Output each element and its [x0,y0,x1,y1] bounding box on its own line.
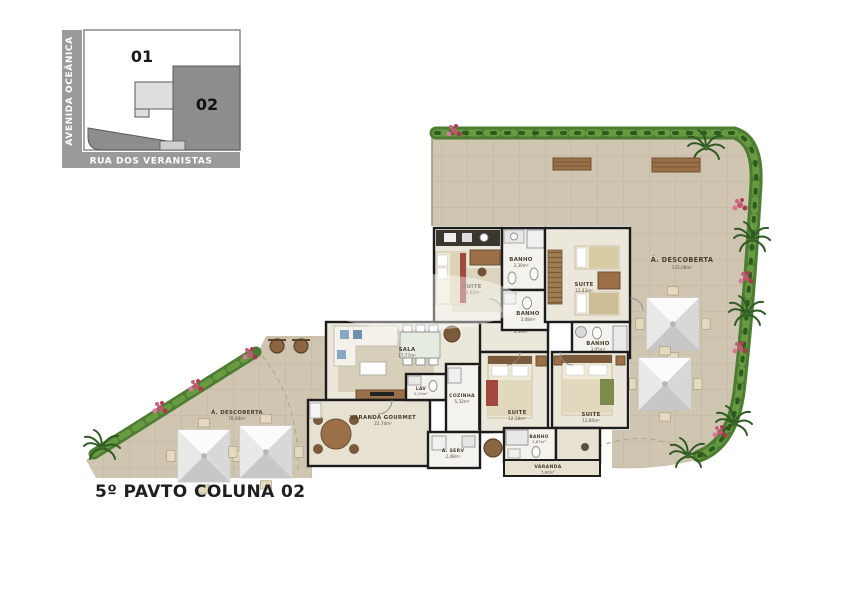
floorplan-page: 01 02 AVENIDA OCEÂNICA RUA DOS VERANISTA… [0,0,849,600]
laundry-tank [462,436,475,447]
apartment-unit-02: SALA 17,77m² VARANDA GOURMET 22,74m² CIR… [308,228,643,476]
street-left-label: AVENIDA OCEÂNICA [63,36,75,145]
bed [575,246,619,269]
room-lav: LAV 2,15m² [406,374,446,400]
room-suite-bottom-left: SUITE 12,18m² [480,352,548,432]
nightstand [598,272,620,289]
tv-sideboard [356,390,412,399]
bench [553,158,591,170]
toilet [508,272,516,284]
room-area: 5,86m² [541,470,555,475]
room-area: 3,08m² [520,317,535,322]
room-area: 2,67m² [532,439,546,444]
sink [511,233,518,240]
elevator-core [135,82,173,109]
desk [470,250,500,265]
room-banho-4: BANHO 2,67m² [504,428,556,462]
bed [562,355,614,415]
gazebo-table [636,287,710,361]
watermark [320,274,520,330]
dining-table [400,325,440,365]
washer [432,436,446,450]
wardrobe [548,250,562,304]
room-area: 5,32m² [454,399,469,404]
shower [506,430,528,445]
floor-drain [581,443,589,451]
counter-appliance [462,233,472,242]
room-area: 2,48m² [445,454,460,459]
open-area-label: Á. DESCOBERTA [211,409,263,416]
toilet [532,447,540,458]
room-area: 2,15m² [414,391,428,396]
bed [575,292,619,315]
room-suite-top-right: SUITE 12,43m² [545,228,630,322]
floorplan-canvas: 01 02 AVENIDA OCEÂNICA RUA DOS VERANISTA… [0,0,849,600]
room-area: 12,80m² [582,418,600,423]
unit-01-label: 01 [131,47,153,66]
room-label: Á. SERV [442,447,465,454]
room-varanda-gourmet: VARANDA GOURMET 22,74m² [308,400,430,466]
shower [613,326,627,354]
coffee-table [360,362,386,375]
gazebo-table [628,347,702,421]
vanity-counter [508,449,520,458]
basin [576,327,587,338]
counter-appliance [444,233,456,242]
nightstand [536,356,546,366]
plan-title: 5º PAVTO COLUNA 02 [95,482,305,502]
elevator-core-step [135,109,149,117]
toilet [429,381,437,392]
bidet [530,268,538,280]
room-banho-1: BANHO 3,30m² [502,228,546,290]
counter-sink [480,234,488,242]
open-area-label: Á. DESCOBERTA [651,255,714,264]
open-area-size: 78,08m² [228,416,246,421]
room-a-serv: Á. SERV 2,48m² [428,432,480,468]
room-suite-bottom-right: SUITE 12,80m² [552,352,628,428]
fridge [448,368,461,383]
desk-chair [478,268,487,277]
gazebo-table [229,415,303,489]
chair [349,444,359,454]
nightstand [616,356,625,365]
open-area-size: 135,08m² [672,265,693,270]
chair [313,444,323,454]
left-terrace: Á. DESCOBERTA 78,08m² [84,336,341,493]
unit-02-notch [160,141,185,150]
toilet [593,327,602,339]
room-area: 17,77m² [398,353,416,358]
shower [527,230,544,248]
planter-box [310,403,321,418]
unit-02-label: 02 [196,95,218,114]
round-table [321,419,351,449]
location-key-map: 01 02 AVENIDA OCEÂNICA RUA DOS VERANISTA… [62,30,240,168]
armchair [484,439,502,457]
room-area: 12,43m² [575,288,593,293]
room-area: 3,30m² [513,263,528,268]
bench [652,158,700,172]
room-area: 12,18m² [508,416,526,421]
vanity-counter [408,376,421,385]
street-bottom-label: RUA DOS VERANISTAS [90,157,213,167]
room-area: 22,74m² [374,421,392,426]
toilet [523,297,532,309]
